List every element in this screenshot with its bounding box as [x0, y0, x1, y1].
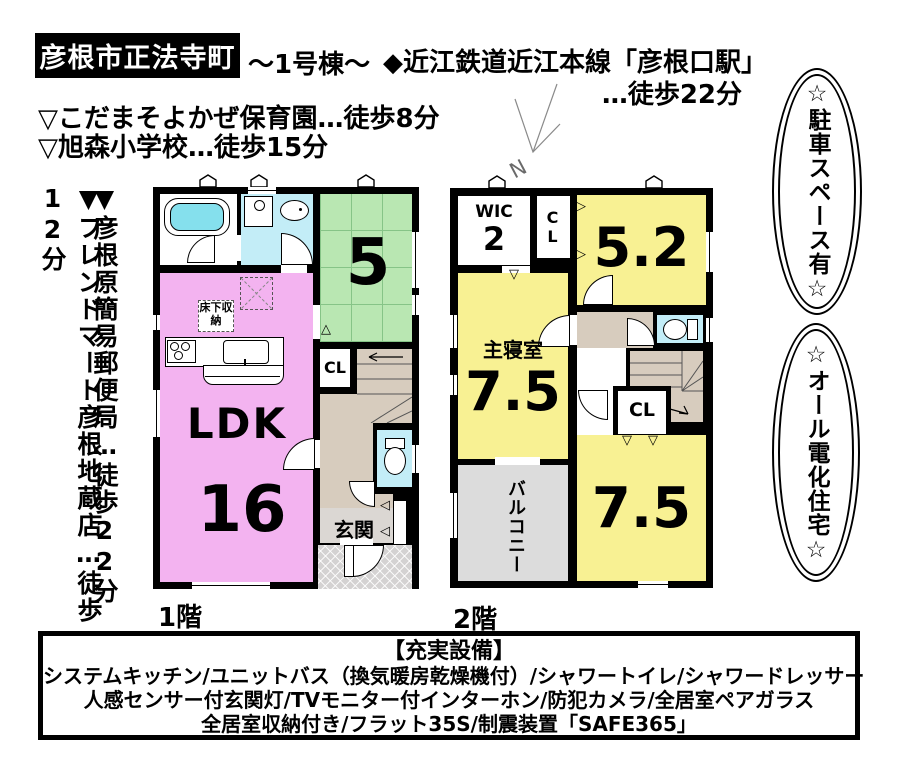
master-bedroom-label: 主寝室: [458, 334, 568, 363]
school-access: ▽旭森小学校…徒歩15分: [38, 127, 328, 164]
washbasin-drain: [299, 208, 302, 211]
floor1-plan: 床下収納 △ ◁ ◁ 5 LDK 16 CL 玄関: [153, 187, 419, 589]
kitchen-island-line: [205, 376, 280, 377]
window: [192, 582, 270, 589]
roof-vent-icon: [250, 174, 268, 188]
roof-vent-icon: [357, 174, 375, 188]
entrance-door-leaf: [344, 545, 354, 577]
room1-size-label: 5.2: [577, 216, 706, 279]
folding-door-icon: ▷: [576, 200, 586, 213]
kitchen-island-edge: [203, 365, 284, 385]
door-opening: [237, 235, 241, 261]
underfloor-storage-label: 床下収納: [198, 300, 234, 332]
window: [412, 445, 419, 473]
window: [706, 318, 713, 342]
bathtub-water: [170, 203, 224, 231]
closet-lower-label: CL: [618, 399, 666, 421]
entrance-door-panel: [393, 500, 407, 545]
washbasin: [280, 200, 309, 221]
underfloor-access-hatch: [240, 277, 273, 310]
wic-label: WIC: [458, 202, 530, 222]
stairs-steps: [357, 349, 412, 423]
roof-vent-icon: [645, 175, 663, 189]
kitchen-sink: [223, 340, 269, 364]
station-access-line2: …徒歩22分: [560, 74, 742, 111]
equipment-title: 【充実設備】: [43, 639, 855, 664]
balcony-label: バルコニー: [502, 476, 528, 576]
parking-badge-text: ☆駐車スペース有☆: [800, 81, 834, 303]
all-electric-badge-text: ☆オール電化住宅☆: [799, 342, 833, 564]
hatch-x-mark: [241, 278, 272, 309]
svg-text:N: N: [506, 155, 531, 180]
equipment-box: 【充実設備】 システムキッチン/ユニットバス（換気暖房乾燥機付）/シャワートイレ…: [38, 631, 860, 740]
ldk-label: LDK: [177, 399, 297, 448]
washing-machine-drum: [254, 200, 265, 211]
door-opening: [313, 305, 320, 339]
location-title: 彦根市正法寺町: [35, 33, 240, 78]
folding-door-icon: ▽: [622, 434, 632, 447]
door-swing-icon: ◁: [380, 499, 390, 512]
window: [412, 232, 419, 288]
floor1-tag: 1階: [158, 597, 202, 634]
toilet-tank: [687, 319, 698, 340]
all-electric-badge: ☆オール電化住宅☆: [772, 323, 860, 582]
equipment-line3: 全居室収納付き/フラット35S/制震装置「SAFE365」: [43, 712, 855, 736]
equipment-line1: システムキッチン/ユニットバス（換気暖房乾燥機付）/シャワートイレ/シャワードレ…: [43, 664, 855, 688]
window: [153, 390, 160, 437]
window: [450, 315, 457, 348]
entrance-label: 玄関: [320, 514, 388, 543]
window: [638, 581, 668, 588]
equipment-line2: 人感センサー付玄関灯/TVモニター付インターホン/防犯カメラ/全居室ペアガラス: [43, 688, 855, 712]
window: [248, 187, 276, 194]
room2-size-label: 7.5: [577, 476, 706, 541]
toilet-floor1: [377, 430, 412, 487]
door-opening: [495, 457, 540, 465]
window: [706, 232, 713, 272]
stove-burner: [174, 351, 183, 360]
window: [153, 315, 160, 330]
tatami-size-label: 5: [333, 223, 403, 303]
window: [412, 295, 419, 315]
parking-badge: ☆駐車スペース有☆: [772, 68, 862, 315]
toilet-floor2: [657, 315, 703, 343]
master-size-label: 7.5: [458, 360, 568, 423]
window: [450, 375, 457, 395]
roof-vent-icon: [488, 175, 506, 189]
stove-burner: [170, 342, 179, 351]
floor2-plan: ▷ ▷ ▽ ▽ ▽ WIC 2 CL 5.2 主寝室 7.5 CL 7.5 バル…: [450, 188, 713, 588]
ldk-size-label: 16: [182, 473, 302, 547]
supermarket-access: ▼フレンドマート彦根地蔵店…徒歩12分: [34, 184, 106, 644]
toilet-bowl: [663, 319, 687, 340]
building-number: ～1号棟～: [248, 44, 370, 81]
folding-door-icon: △: [321, 323, 331, 336]
stove-burner: [181, 342, 190, 351]
window: [450, 493, 457, 538]
door-opening: [281, 265, 307, 273]
closet-label-floor1: CL: [320, 358, 350, 377]
north-arrow-icon: N: [497, 82, 569, 180]
folding-door-icon: ▽: [509, 268, 519, 281]
wic-size-label: 2: [458, 220, 530, 258]
closet-upper-label: CL: [543, 202, 562, 252]
toilet-bowl: [384, 447, 406, 475]
roof-vent-icon: [199, 174, 217, 188]
flyer-page: { "header": { "location": "彦根市正法寺町", "bu…: [0, 0, 898, 768]
folding-door-icon: ▽: [648, 434, 658, 447]
stairs-floor1: [357, 349, 412, 423]
